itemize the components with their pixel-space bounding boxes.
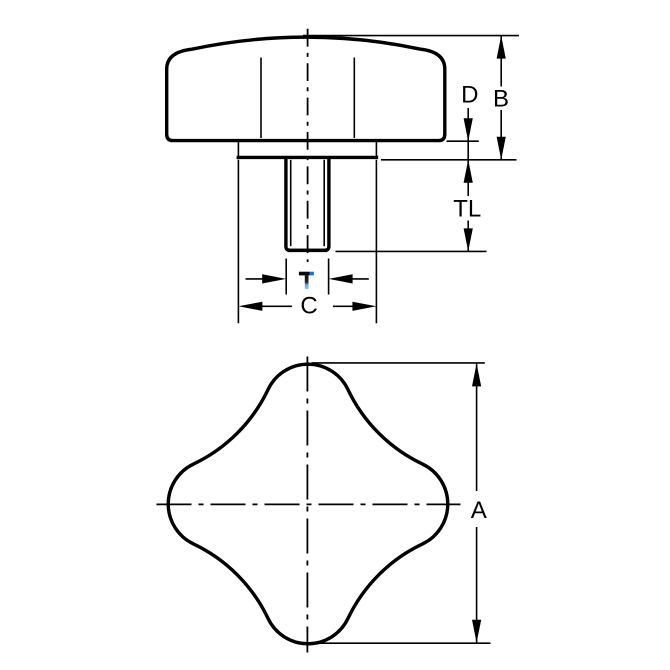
svg-text:C: C — [300, 292, 317, 319]
svg-text:B: B — [493, 85, 509, 112]
svg-text:TL: TL — [453, 196, 481, 223]
svg-text:A: A — [471, 497, 487, 524]
svg-text:D: D — [461, 81, 478, 108]
